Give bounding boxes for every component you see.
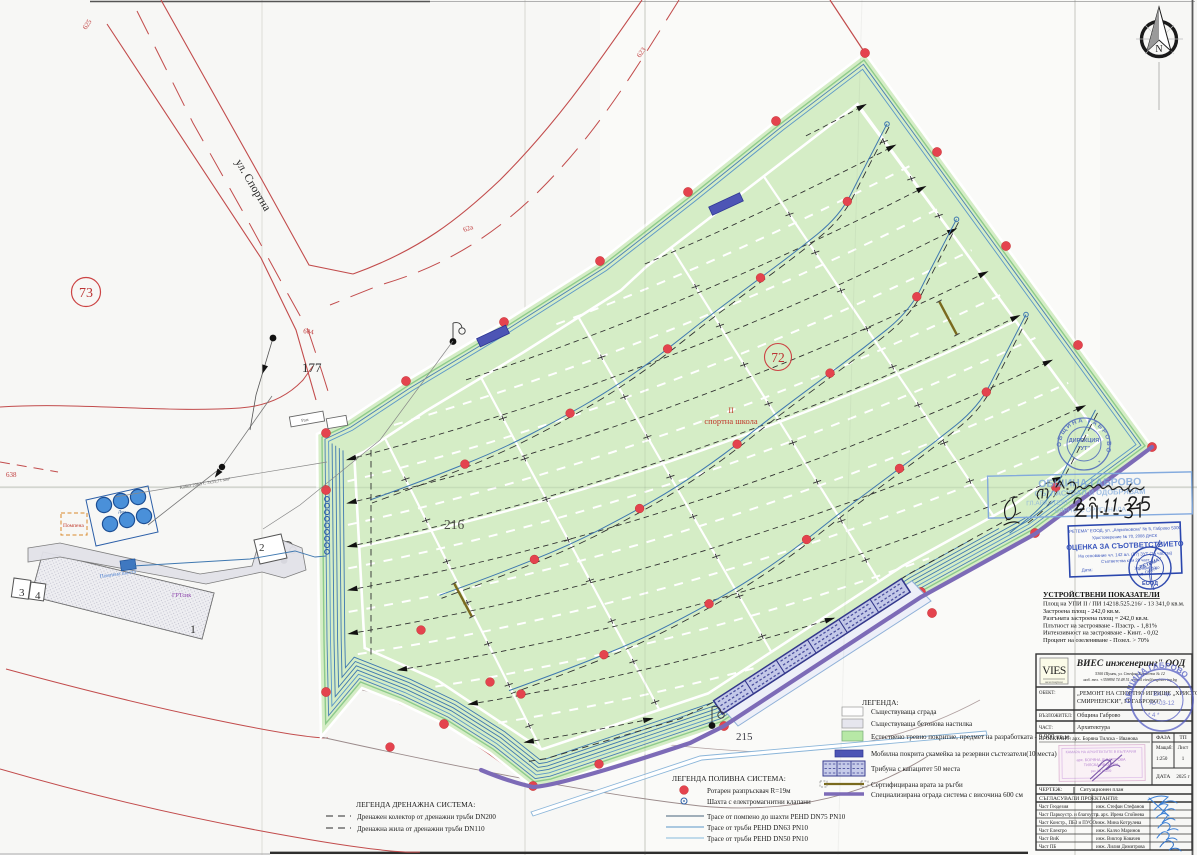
svg-text:2025 г: 2025 г: [1176, 775, 1189, 780]
svg-text:Мащаб:: Мащаб:: [1156, 746, 1173, 751]
svg-text:АУ-03-12: АУ-03-12: [1150, 701, 1176, 707]
svg-text:ЛЕГЕНДА ПОЛИВНА СИСТЕМА:: ЛЕГЕНДА ПОЛИВНА СИСТЕМА:: [672, 774, 786, 783]
svg-text:СЪГЛАСУВАЛИ ПРОЕКТАНТИ:: СЪГЛАСУВАЛИ ПРОЕКТАНТИ:: [1039, 796, 1119, 802]
svg-text:"УТ": "УТ": [1078, 446, 1090, 452]
svg-text:Трасе от помпено до шахти PEHD: Трасе от помпено до шахти PEHD DN75 PN10: [707, 813, 846, 821]
svg-text:ПРОЕКТАНТ: арх. Боряна Тилска: ПРОЕКТАНТ: арх. Боряна Тилска - Иванова: [1039, 736, 1138, 742]
svg-text:2: 2: [259, 542, 265, 554]
svg-text:Съществуваща сграда: Съществуваща сграда: [871, 708, 937, 716]
svg-text:72: 72: [771, 350, 785, 365]
svg-text:инж. Лилия Димитрова: инж. Лилия Димитрова: [1096, 845, 1146, 850]
svg-text:Част ВиК: Част ВиК: [1039, 837, 1060, 842]
svg-text:ЧЕРТЕЖ:: ЧЕРТЕЖ:: [1039, 787, 1063, 793]
svg-text:инж. Калчо Маринов: инж. Калчо Маринов: [1096, 829, 1141, 834]
svg-text:Ротарен разпръсквач R=19м: Ротарен разпръсквач R=19м: [707, 787, 791, 795]
svg-text:Специализирана ограда система: Специализирана ограда система с височина…: [871, 791, 1023, 799]
svg-text:Трасе от тръби PEHD DN50 PN10: Трасе от тръби PEHD DN50 PN10: [707, 835, 809, 843]
svg-text:ЛЕГЕНДА ДРЕНАЖНА СИСТЕМА:: ЛЕГЕНДА ДРЕНАЖНА СИСТЕМА:: [356, 800, 475, 809]
svg-text:Дренажна жила от дренажни тръб: Дренажна жила от дренажни тръби DN110: [357, 825, 485, 833]
svg-text:Съществуваща бетонова настилка: Съществуваща бетонова настилка: [871, 720, 973, 728]
svg-text:УСТРОЙСТВЕНИ ПОКАЗАТЕЛИ: УСТРОЙСТВЕНИ ПОКАЗАТЕЛИ: [1043, 590, 1160, 599]
svg-text:Част Геодезия: Част Геодезия: [1039, 805, 1069, 810]
svg-text:Дои: Дои: [118, 509, 126, 514]
svg-text:Част Паркоустр. и благоустр.: Част Паркоустр. и благоустр.: [1039, 813, 1100, 818]
svg-text:Трибуна с капацитет 50 места: Трибуна с капацитет 50 места: [871, 765, 961, 773]
svg-text:Сертифицирана врата за ръгби: Сертифицирана врата за ръгби: [871, 781, 963, 789]
svg-text:638: 638: [6, 471, 17, 479]
svg-text:VIES: VIES: [1042, 665, 1066, 677]
svg-text:ДИРЕКЦИЯ: ДИРЕКЦИЯ: [1069, 438, 1100, 444]
svg-text:инж. Виктор Ковачев: инж. Виктор Ковачев: [1096, 837, 1141, 842]
svg-text:Част Констр., ПБЗ и ПУСО: Част Констр., ПБЗ и ПУСО: [1039, 821, 1097, 826]
svg-text:Интензивност на застрояване -: Интензивност на застрояване - Кинт. - 0,…: [1043, 630, 1158, 637]
svg-text:Лист: Лист: [1178, 746, 1189, 751]
svg-text:ЛЕГЕНДА:: ЛЕГЕНДА:: [862, 698, 899, 707]
svg-text:Архитектура: Архитектура: [1077, 725, 1110, 731]
svg-text:Разгъната застроена площ = 242: Разгъната застроена площ = 242,0 кв.м.: [1043, 615, 1149, 622]
svg-text:КАМАРА НА АРХИТЕКТИТЕ В БЪЛГАР: КАМАРА НА АРХИТЕКТИТЕ В БЪЛГАРИЯ: [1066, 750, 1137, 755]
svg-text:ГРТсик: ГРТсик: [172, 593, 191, 599]
svg-text:инженеринг: инженеринг: [1045, 680, 1064, 684]
svg-text:Площ на УПИ II / ПИ 14218.525.: Площ на УПИ II / ПИ 14218.525.216/ - 13 …: [1043, 601, 1185, 608]
svg-text:Застроена площ - 242,0 кв.м.: Застроена площ - 242,0 кв.м.: [1043, 608, 1121, 615]
svg-text:1: 1: [190, 622, 196, 636]
svg-text:ЕООД: ЕООД: [1142, 581, 1158, 587]
svg-text:инж. Стефан Стефанов: инж. Стефан Стефанов: [1096, 805, 1145, 810]
svg-text:„РЕМОНТ НА СПОРТНО ИГРИЩЕ „ХРИ: „РЕМОНТ НА СПОРТНО ИГРИЩЕ „ХРИСТО: [1077, 691, 1197, 697]
svg-text:ДАТА: ДАТА: [1156, 774, 1170, 780]
svg-text:ФАЗА: ФАЗА: [1156, 735, 1171, 741]
svg-text:Част ПБ: Част ПБ: [1039, 845, 1056, 850]
svg-text:N: N: [1155, 44, 1162, 55]
svg-text:Община Габрово: Община Габрово: [1077, 712, 1120, 719]
svg-text:216: 216: [444, 517, 465, 532]
svg-text:3: 3: [19, 587, 25, 599]
svg-text:Дата:: Дата:: [1082, 567, 1093, 572]
svg-text:Процент на озеленяване - Позел: Процент на озеленяване - Позел. > 70%: [1043, 637, 1150, 644]
svg-text:Помпена: Помпена: [63, 523, 84, 529]
svg-text:л. арх. Ирена Стойнева: л. арх. Ирена Стойнева: [1096, 813, 1145, 818]
svg-text:инж. Мина Котрулева: инж. Мина Котрулева: [1096, 821, 1142, 826]
svg-text:Ситуационен план: Ситуационен план: [1080, 787, 1124, 793]
svg-text:215: 215: [736, 731, 753, 743]
svg-text:604: 604: [303, 327, 315, 336]
svg-text:73: 73: [79, 286, 93, 301]
svg-text:ТП: ТП: [1179, 735, 1186, 741]
svg-text:* 4 *: * 4 *: [1148, 713, 1160, 719]
svg-text:ОБЕКТ:: ОБЕКТ:: [1039, 691, 1056, 696]
svg-text:ВХ. №: ВХ. №: [1153, 691, 1171, 698]
svg-text:ЧАСТ:: ЧАСТ:: [1039, 726, 1053, 731]
svg-text:II: II: [728, 406, 734, 415]
svg-text:1:250: 1:250: [1156, 757, 1168, 762]
svg-text:Плътност на застрояване - Пзас: Плътност на застрояване - Пзастр. - 1,81…: [1043, 622, 1158, 629]
svg-text:4: 4: [35, 590, 41, 602]
svg-text:спортна школа: спортна школа: [704, 416, 757, 426]
svg-text:177: 177: [302, 360, 322, 375]
svg-text:ВЪЗЛОЖИТЕЛ:: ВЪЗЛОЖИТЕЛ:: [1039, 714, 1072, 719]
svg-text:Шахта с електромагнитни клапан: Шахта с електромагнитни клапани: [707, 798, 811, 806]
svg-text:Мобилна покрита скамейка за ре: Мобилна покрита скамейка за резервни със…: [871, 750, 1057, 758]
svg-text:Дренажен колектор от дренажни: Дренажен колектор от дренажни тръби DN20…: [357, 813, 496, 821]
svg-text:Част Електро: Част Електро: [1039, 829, 1067, 834]
svg-text:ГЛ.АРХИТЕКТ:: ГЛ.АРХИТЕКТ:: [1026, 499, 1071, 507]
svg-text:Трасе от тръби PEHD DN63 PN10: Трасе от тръби PEHD DN63 PN10: [707, 824, 809, 832]
